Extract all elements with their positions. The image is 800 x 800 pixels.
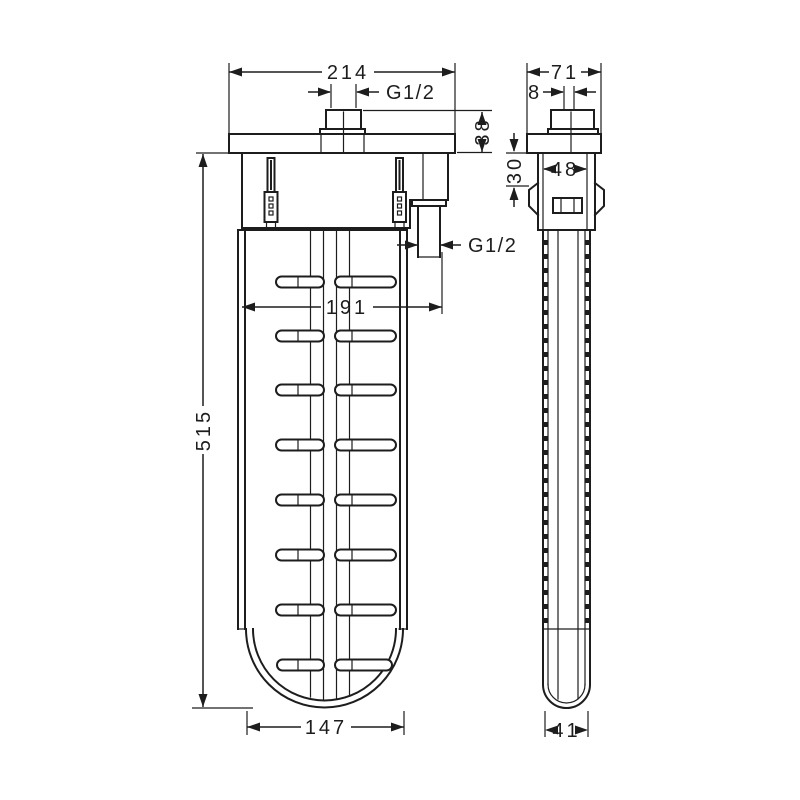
- dim-515: 515: [192, 153, 253, 708]
- dim-outlet-offset-label: 191: [326, 297, 368, 319]
- dim-shaft-depth-label: 41: [552, 720, 580, 742]
- dim-thread-offset-label: 8: [528, 82, 542, 104]
- dim-30: 30: [504, 133, 529, 207]
- dim-214: 214: [229, 62, 455, 151]
- dim-48: 48: [543, 159, 587, 181]
- dim-top-thread-label: G1/2: [386, 82, 435, 104]
- dim-plate-depth-label: 71: [551, 62, 579, 84]
- dim-147: 147: [247, 711, 404, 739]
- dim-total-height-label: 515: [193, 409, 215, 451]
- dim-clip-depth-label: 30: [504, 156, 526, 184]
- dim-g12-top: G1/2: [308, 82, 435, 108]
- dim-plate-width-label: 214: [327, 62, 369, 84]
- technical-drawing: 214 G1/2 38: [0, 0, 800, 800]
- dim-41: 41: [545, 711, 588, 742]
- side-top-connector: [548, 110, 598, 152]
- front-top-connector: [320, 110, 365, 152]
- dim-38: 38: [363, 111, 494, 153]
- front-anchor-bolts: [265, 158, 407, 228]
- dim-body-width-label: 147: [305, 717, 347, 739]
- dim-8: 8: [528, 82, 596, 109]
- side-shaft: [543, 230, 590, 708]
- dim-plate-drop-label: 38: [472, 117, 494, 145]
- front-mounting-plate: [229, 134, 455, 153]
- front-dimensions: 214 G1/2 38: [192, 62, 517, 739]
- front-body: [238, 230, 407, 708]
- dim-g12-side: G1/2: [397, 235, 517, 257]
- side-view: 71 8 30 48: [504, 62, 604, 742]
- dim-side-thread-label: G1/2: [468, 235, 517, 257]
- front-view: 214 G1/2 38: [192, 62, 517, 739]
- dim-body-inner-depth-label: 48: [551, 159, 579, 181]
- side-mounting-plate: [527, 134, 601, 153]
